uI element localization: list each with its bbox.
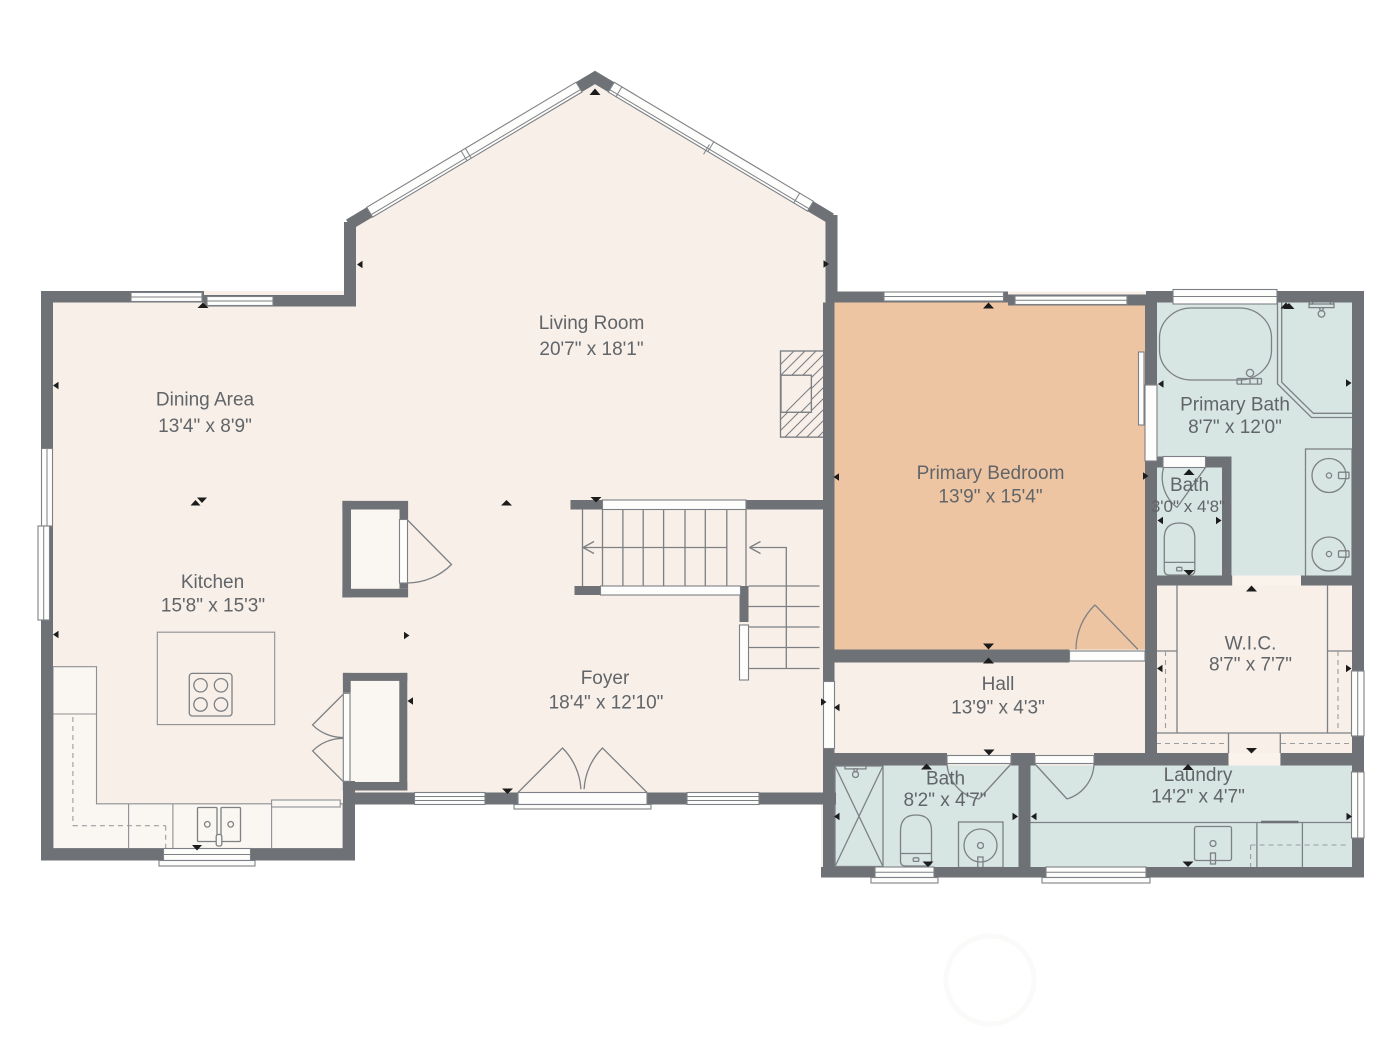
svg-text:Dining Area: Dining Area bbox=[156, 390, 255, 411]
svg-text:14'2" x 4'7": 14'2" x 4'7" bbox=[1151, 787, 1245, 808]
svg-text:W.I.C.: W.I.C. bbox=[1225, 634, 1277, 655]
svg-text:3'0" x 4'8": 3'0" x 4'8" bbox=[1151, 497, 1225, 516]
svg-text:Living Room: Living Room bbox=[539, 313, 645, 334]
svg-text:Foyer: Foyer bbox=[581, 668, 630, 689]
svg-text:8'7" x 7'7": 8'7" x 7'7" bbox=[1209, 655, 1292, 676]
svg-text:15'8" x 15'3": 15'8" x 15'3" bbox=[161, 596, 265, 617]
svg-text:Bath: Bath bbox=[926, 769, 965, 790]
svg-text:8'2" x 4'7": 8'2" x 4'7" bbox=[903, 790, 986, 811]
svg-text:Primary Bedroom: Primary Bedroom bbox=[917, 463, 1065, 484]
svg-text:20'7" x 18'1": 20'7" x 18'1" bbox=[539, 339, 643, 360]
svg-text:18'4" x 12'10": 18'4" x 12'10" bbox=[549, 693, 664, 714]
svg-text:8'7" x 12'0": 8'7" x 12'0" bbox=[1188, 417, 1282, 438]
svg-text:13'9" x 4'3": 13'9" x 4'3" bbox=[951, 698, 1045, 719]
svg-text:Laundry: Laundry bbox=[1164, 765, 1233, 786]
svg-text:Hall: Hall bbox=[982, 674, 1015, 695]
svg-text:Bath: Bath bbox=[1170, 475, 1209, 496]
svg-text:Primary Bath: Primary Bath bbox=[1180, 395, 1290, 416]
svg-text:13'9" x 15'4": 13'9" x 15'4" bbox=[938, 487, 1042, 508]
svg-text:13'4" x 8'9": 13'4" x 8'9" bbox=[158, 416, 252, 437]
svg-text:Kitchen: Kitchen bbox=[181, 572, 244, 593]
